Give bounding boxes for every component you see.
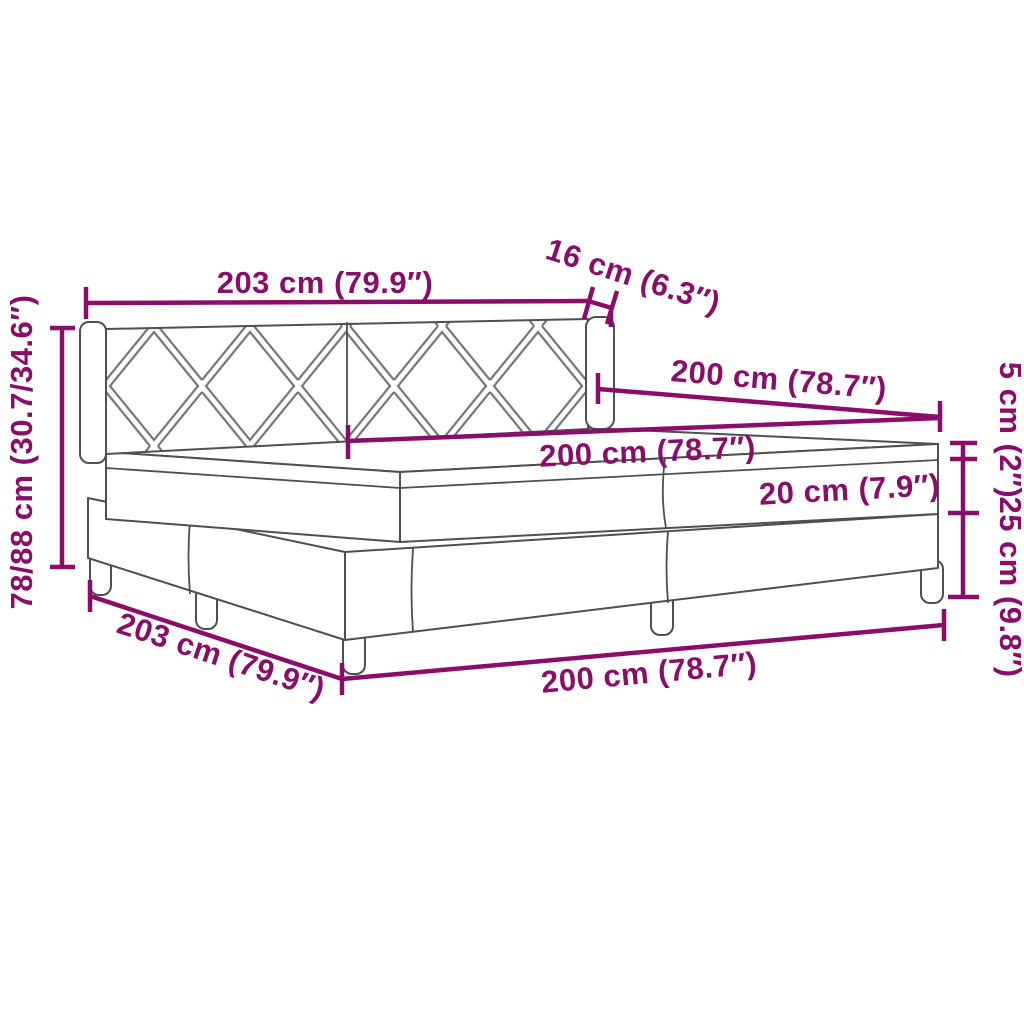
headboard-left-wing <box>80 322 106 463</box>
dim-right-heights <box>948 443 979 597</box>
headboard-depth-label: 16 cm (6.3″) <box>542 231 725 320</box>
topper-height-label: 5 cm (2″) <box>993 362 1024 499</box>
base-height-label: 25 cm (9.8″) <box>993 496 1024 677</box>
total-height-label: 78/88 cm (30.7/34.6″) <box>4 295 39 610</box>
product-dimension-diagram: 203 cm (79.9″) 16 cm (6.3″) 200 cm (78.7… <box>0 0 1024 1024</box>
headboard-width-label: 203 cm (79.9″) <box>217 265 434 300</box>
dim-total-height <box>50 328 75 567</box>
